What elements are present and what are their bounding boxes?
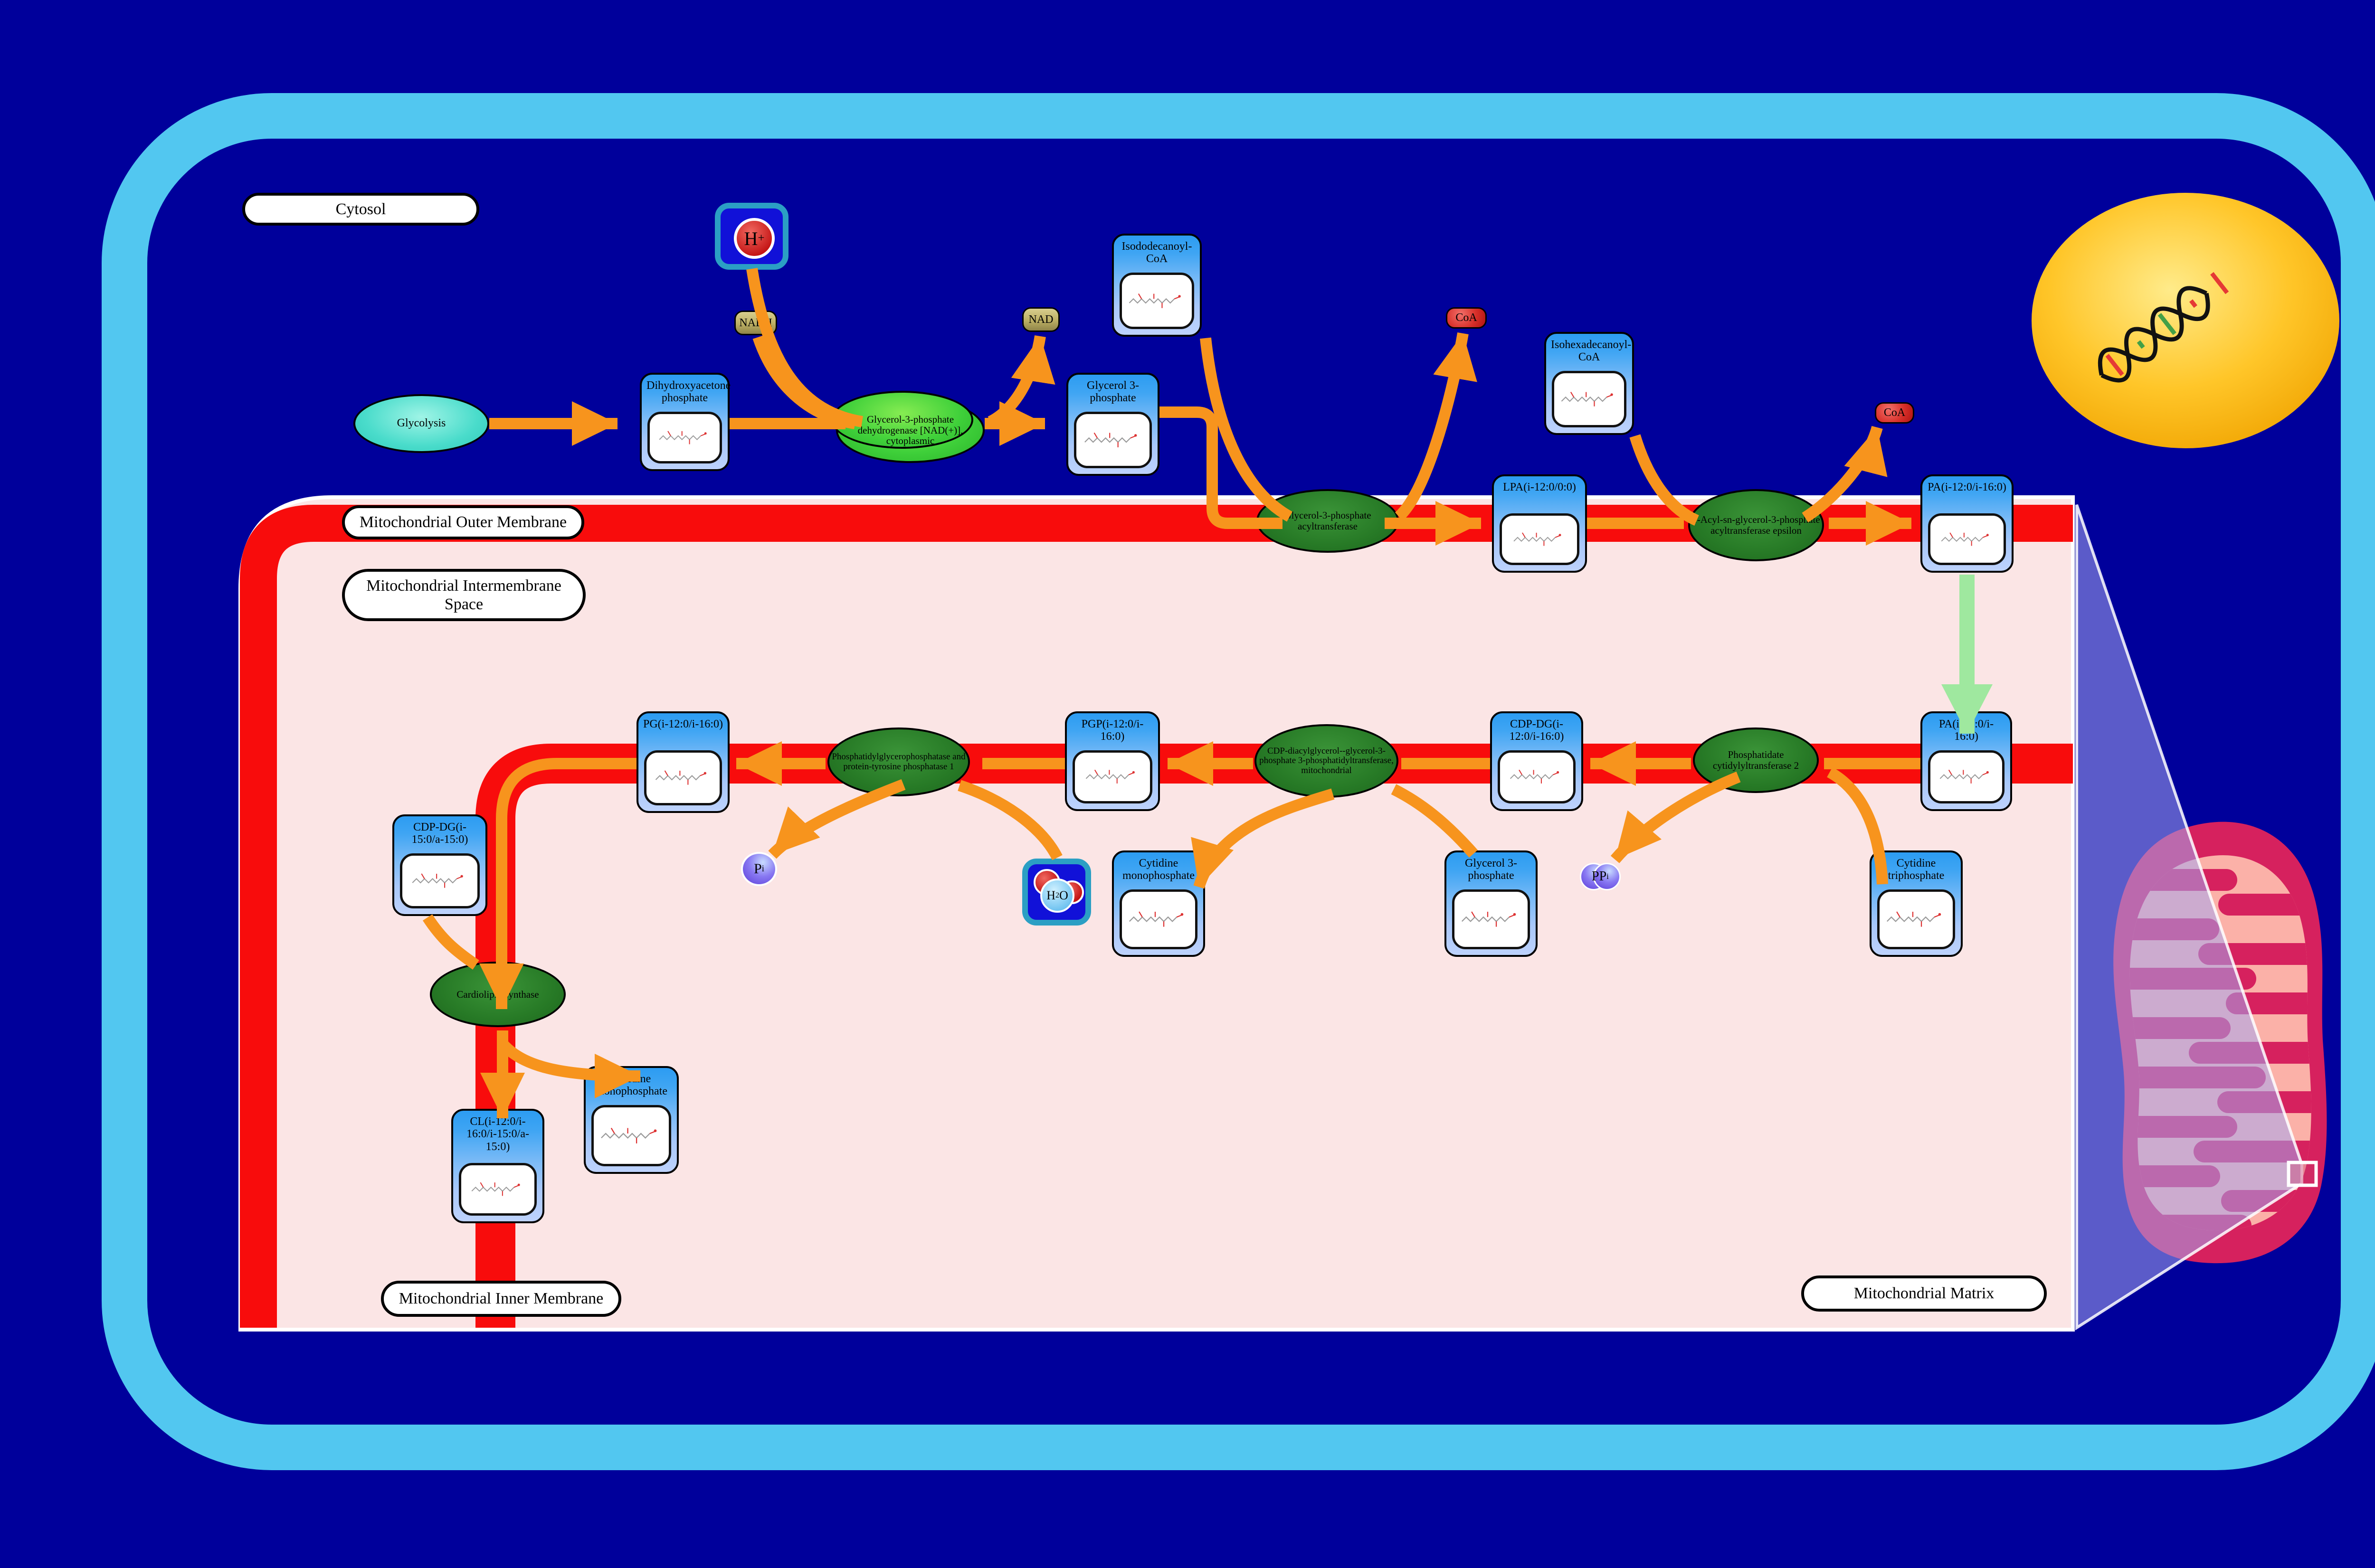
molecule-structure: [1120, 273, 1194, 329]
chip-h-plus[interactable]: H+: [715, 203, 788, 270]
node-glycerol-3-phosphate-top[interactable]: Glycerol 3-phosphate: [1066, 373, 1159, 476]
pathway-canvas: Cytosol Mitochondrial Outer Membrane Mit…: [0, 0, 2375, 1568]
enzyme-agpat-epsilon[interactable]: 1-Acyl-sn-glycerol-3-phosphate acyltrans…: [1688, 489, 1824, 561]
node-isododecanoyl-coa[interactable]: Isododecanoyl-CoA: [1112, 234, 1202, 337]
molecule-structure: [591, 1105, 671, 1166]
molecule-structure: [1928, 750, 2004, 803]
enzyme-pgpase[interactable]: Phosphatidylglycerophosphatase and prote…: [827, 727, 970, 796]
node-cmp-mid[interactable]: Cytidine monophosphate: [1112, 850, 1205, 957]
node-lpa[interactable]: LPA(i-12:0/0:0): [1492, 474, 1587, 573]
node-cdp-dg-2[interactable]: CDP-DG(i-15:0/a-15:0): [392, 814, 487, 916]
label-matrix: Mitochondrial Matrix: [1801, 1275, 2047, 1312]
node-glycolysis[interactable]: Glycolysis: [353, 394, 489, 453]
h-plus-atom: H+: [734, 218, 775, 259]
label-inner-membrane: Mitochondrial Inner Membrane: [381, 1281, 621, 1317]
molecule-structure: [1120, 889, 1197, 949]
label-intermembrane-space: Mitochondrial Intermembrane Space: [342, 569, 586, 621]
chip-h2o[interactable]: H2O: [1022, 859, 1091, 926]
molecule-structure: [647, 412, 722, 463]
node-pgp[interactable]: PGP(i-12:0/i-16:0): [1065, 711, 1160, 811]
enzyme-cdgs[interactable]: CDP-diacylglycerol--glycerol-3-phosphate…: [1254, 724, 1398, 798]
molecule-structure: [1452, 889, 1530, 949]
node-pa-top[interactable]: PA(i-12:0/i-16:0): [1920, 474, 2014, 573]
chip-ppi[interactable]: PPi: [1580, 862, 1621, 891]
node-pa-mid[interactable]: PA(i-12:0/i-16:0): [1920, 711, 2012, 811]
molecule-structure: [644, 750, 722, 805]
node-cmp-bottom[interactable]: Cytidine monophosphate: [584, 1066, 679, 1174]
chip-coa-2[interactable]: CoA: [1875, 402, 1914, 424]
node-cdp-dg-1[interactable]: CDP-DG(i-12:0/i-16:0): [1490, 711, 1583, 811]
node-pg[interactable]: PG(i-12:0/i-16:0): [636, 711, 730, 813]
enzyme-gpat[interactable]: Glycerol-3-phosphate acyltransferase: [1256, 489, 1399, 553]
molecule-structure: [459, 1163, 537, 1216]
enzyme-cls[interactable]: Cardiolipin synthase: [430, 962, 566, 1027]
chip-nad[interactable]: NAD: [1022, 307, 1060, 332]
chip-coa-1[interactable]: CoA: [1446, 307, 1487, 329]
molecule-structure: [1877, 889, 1955, 949]
node-dhap[interactable]: Dihydroxyacetone phosphate: [640, 373, 730, 471]
node-cardiolipin[interactable]: CL(i-12:0/i-16:0/i-15:0/a-15:0): [451, 1109, 544, 1223]
label-cytosol: Cytosol: [242, 193, 479, 226]
molecule-structure: [1498, 750, 1576, 803]
zoom-target-square: [2289, 1162, 2316, 1185]
label-outer-membrane: Mitochondrial Outer Membrane: [342, 505, 584, 539]
chip-pi[interactable]: Pi: [741, 852, 777, 886]
chip-nadh[interactable]: NADH: [734, 311, 777, 335]
nucleus: [2032, 193, 2339, 448]
molecule-structure: [1073, 750, 1152, 803]
molecule-structure: [1552, 371, 1626, 427]
molecule-structure: [1928, 513, 2006, 565]
enzyme-gpd[interactable]: Glycerol-3-phosphate dehydrogenase [NAD(…: [836, 397, 985, 463]
enzyme-pct2[interactable]: Phosphatidate cytidylyltransferase 2: [1693, 727, 1819, 793]
molecule-structure: [1074, 412, 1152, 468]
node-glycerol-3-phosphate-bottom[interactable]: Glycerol 3-phosphate: [1444, 850, 1538, 957]
molecule-structure: [400, 853, 480, 908]
water-label: H2O: [1040, 878, 1074, 913]
node-ctp[interactable]: Cytidine triphosphate: [1870, 850, 1963, 957]
node-isohexadecanoyl-coa[interactable]: Isohexadecanoyl-CoA: [1544, 332, 1634, 435]
molecule-structure: [1500, 513, 1579, 565]
